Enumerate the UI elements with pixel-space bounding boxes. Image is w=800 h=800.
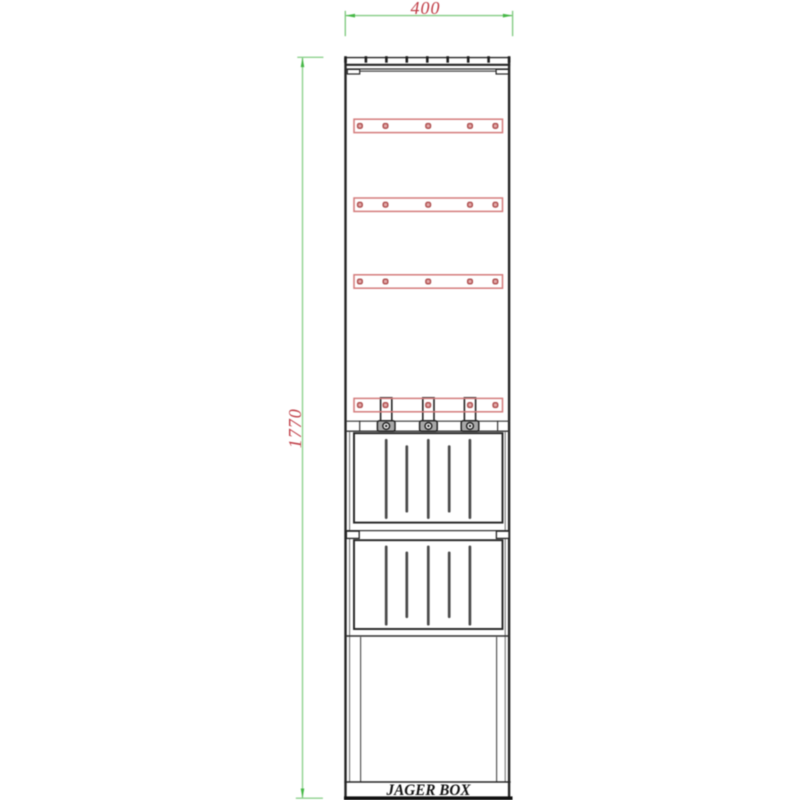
- svg-text:400: 400: [411, 0, 441, 18]
- svg-text:1770: 1770: [285, 408, 305, 448]
